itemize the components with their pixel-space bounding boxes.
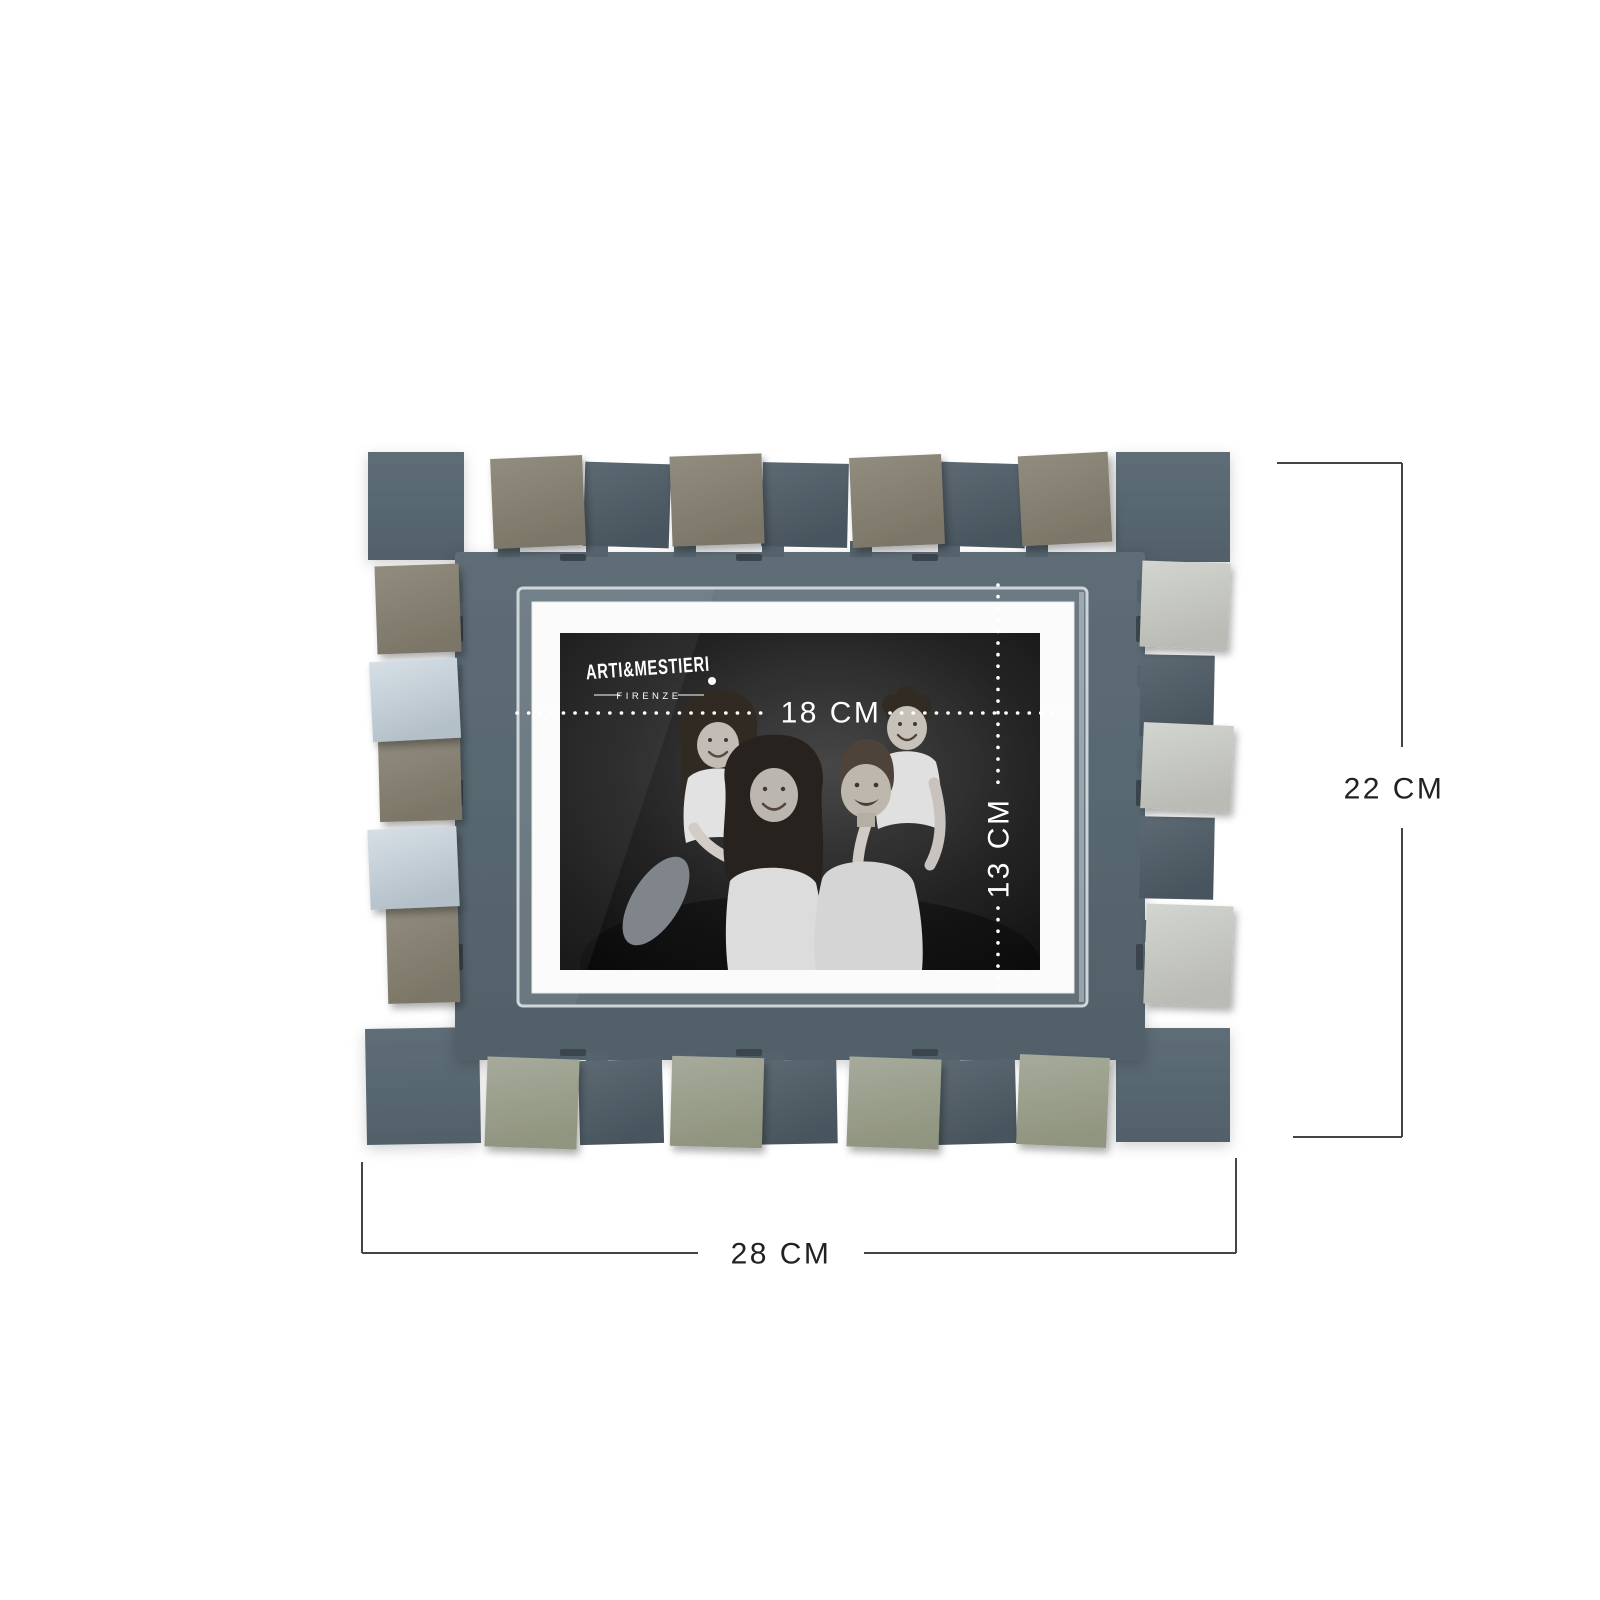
frame-square	[670, 1056, 764, 1148]
frame-right-band	[1139, 560, 1234, 1006]
frame-square	[849, 454, 945, 548]
frame-square	[669, 453, 764, 546]
frame-square	[369, 658, 461, 742]
frame-square	[484, 1056, 579, 1149]
frame-square	[931, 1059, 1017, 1145]
dim-frame-height: 22 CM	[1277, 463, 1444, 1137]
frame-square	[1139, 816, 1215, 900]
scene: ARTI&MESTIERI FIRENZE 18 CM 13 CM 22 CM …	[0, 0, 1600, 1600]
photo-height-label: 13 CM	[983, 798, 1016, 899]
frame-square	[386, 902, 461, 1004]
frame-square	[1140, 560, 1231, 649]
frame-top-band	[490, 452, 1112, 549]
dim-frame-width: 28 CM	[362, 1158, 1236, 1271]
frame-square	[374, 564, 461, 655]
frame-square	[1143, 904, 1233, 1007]
frame-left-band	[367, 564, 462, 1004]
frame-square	[578, 1059, 664, 1145]
brand-logo-dot	[708, 677, 716, 685]
frame-height-label: 22 CM	[1344, 773, 1445, 806]
frame-square	[490, 455, 586, 549]
frame-square	[1018, 452, 1113, 547]
product-dimension-image: ARTI&MESTIERI FIRENZE 18 CM 13 CM 22 CM …	[0, 0, 1600, 1600]
frame-corner-top-right	[1116, 452, 1230, 562]
frame-square	[1140, 722, 1234, 812]
glass-edge-highlight	[1079, 592, 1084, 1002]
frame-square	[752, 1059, 837, 1144]
frame-square	[583, 462, 672, 549]
frame-corner-top-left	[368, 452, 464, 560]
frame-square	[367, 826, 459, 910]
frame-square	[1016, 1054, 1110, 1148]
frame-square	[378, 736, 462, 822]
frame-square	[846, 1056, 941, 1149]
frame-bottom-band	[484, 1054, 1109, 1149]
photo-width-label: 18 CM	[781, 697, 882, 730]
frame-width-label: 28 CM	[731, 1238, 832, 1271]
frame-square	[761, 462, 849, 548]
frame-square	[939, 462, 1028, 549]
